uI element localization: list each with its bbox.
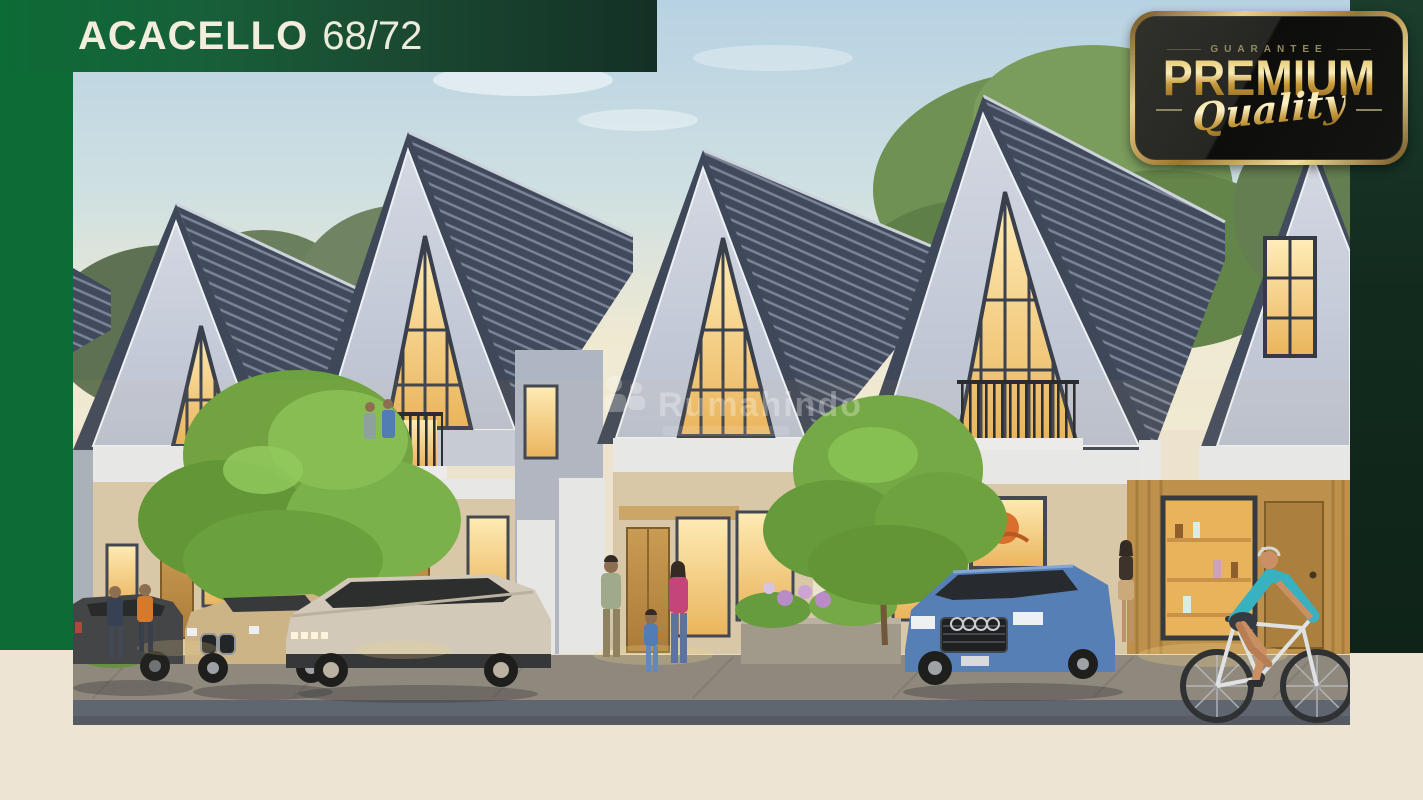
gold-dash-right (1356, 109, 1382, 111)
watermark-tagline-blur (662, 426, 790, 436)
title-bar: ACACELLO 68/72 (0, 0, 657, 72)
unit-type: 68/72 (322, 14, 422, 59)
premium-quality-badge: GUARANTEE PREMIUM Quality (1130, 11, 1408, 165)
badge-inner: GUARANTEE PREMIUM Quality (1135, 16, 1403, 160)
watermark-text: Rumahindo (658, 386, 863, 424)
property-flyer: Rumahindo ACACELLO 68/72 GUARANTEE PREMI… (0, 0, 1423, 800)
gold-dash-left (1156, 109, 1182, 111)
project-name: ACACELLO (78, 14, 308, 59)
left-green-bar (0, 0, 73, 650)
